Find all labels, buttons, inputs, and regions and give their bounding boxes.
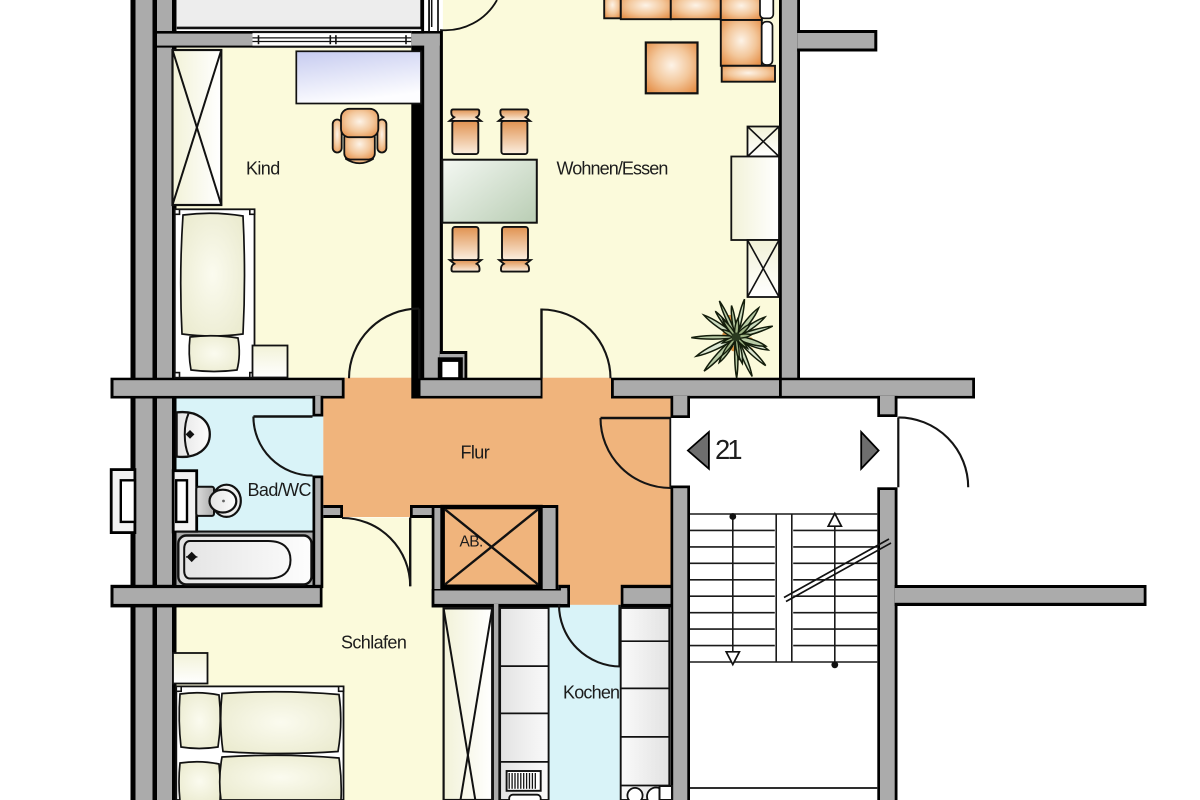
svg-text:Kochen: Kochen bbox=[563, 683, 619, 703]
svg-text:Schlafen: Schlafen bbox=[341, 633, 406, 653]
svg-text:21: 21 bbox=[715, 434, 741, 465]
svg-text:Wohnen/Essen: Wohnen/Essen bbox=[557, 159, 668, 179]
svg-text:Kind: Kind bbox=[246, 159, 280, 179]
svg-text:Bad/WC: Bad/WC bbox=[248, 480, 312, 500]
svg-text:AB.: AB. bbox=[460, 534, 483, 551]
svg-text:Flur: Flur bbox=[461, 442, 490, 462]
